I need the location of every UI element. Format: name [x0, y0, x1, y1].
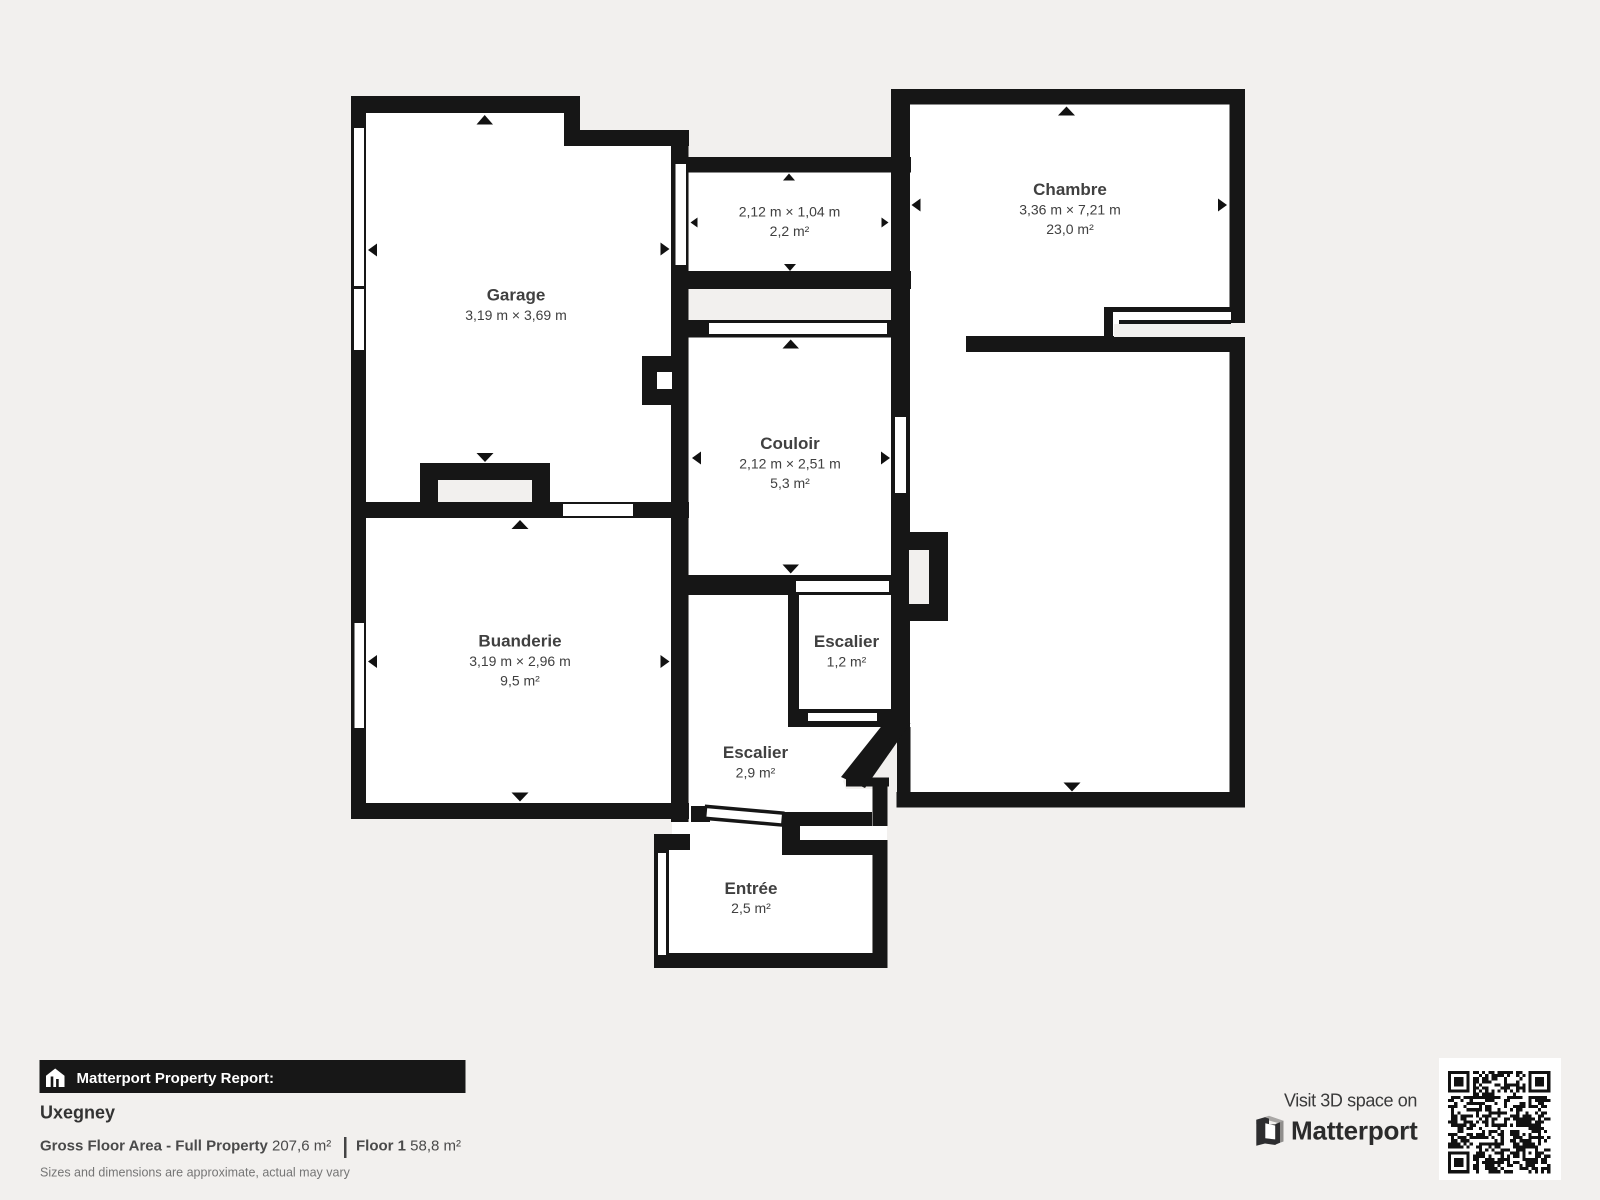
svg-text:2,5 m²: 2,5 m²: [731, 900, 771, 916]
svg-text:3,19 m × 3,69 m: 3,19 m × 3,69 m: [465, 307, 567, 323]
svg-text:3,36 m × 7,21 m: 3,36 m × 7,21 m: [1019, 202, 1121, 218]
svg-text:Couloir: Couloir: [760, 434, 820, 453]
svg-text:Escalier: Escalier: [723, 743, 789, 762]
svg-text:3,19 m × 2,96 m: 3,19 m × 2,96 m: [469, 653, 571, 669]
svg-text:Visit 3D space on: Visit 3D space on: [1284, 1091, 1417, 1111]
svg-text:Sizes and dimensions are appro: Sizes and dimensions are approximate, ac…: [40, 1166, 351, 1180]
svg-text:23,0 m²: 23,0 m²: [1046, 221, 1094, 237]
svg-text:Gross Floor Area - Full Proper: Gross Floor Area - Full Property 207,6 m…: [40, 1138, 331, 1155]
svg-text:9,5 m²: 9,5 m²: [500, 673, 540, 689]
svg-text:Matterport Property Report:: Matterport Property Report:: [77, 1070, 275, 1087]
svg-text:2,12 m × 2,51 m: 2,12 m × 2,51 m: [739, 456, 841, 472]
svg-text:Floor 1 58,8 m²: Floor 1 58,8 m²: [356, 1138, 461, 1155]
svg-text:5,3 m²: 5,3 m²: [770, 475, 810, 491]
svg-text:Garage: Garage: [487, 286, 546, 305]
svg-text:1,2 m²: 1,2 m²: [827, 654, 867, 670]
svg-text:2,2 m²: 2,2 m²: [770, 223, 810, 239]
svg-text:Matterport: Matterport: [1291, 1116, 1418, 1146]
svg-text:2,12 m × 1,04 m: 2,12 m × 1,04 m: [739, 204, 841, 220]
svg-text:Entrée: Entrée: [725, 879, 778, 898]
svg-text:Escalier: Escalier: [814, 632, 880, 651]
svg-text:Chambre: Chambre: [1033, 180, 1107, 199]
svg-text:Buanderie: Buanderie: [478, 632, 561, 651]
svg-text:2,9 m²: 2,9 m²: [736, 765, 776, 781]
svg-text:Uxegney: Uxegney: [40, 1103, 115, 1123]
